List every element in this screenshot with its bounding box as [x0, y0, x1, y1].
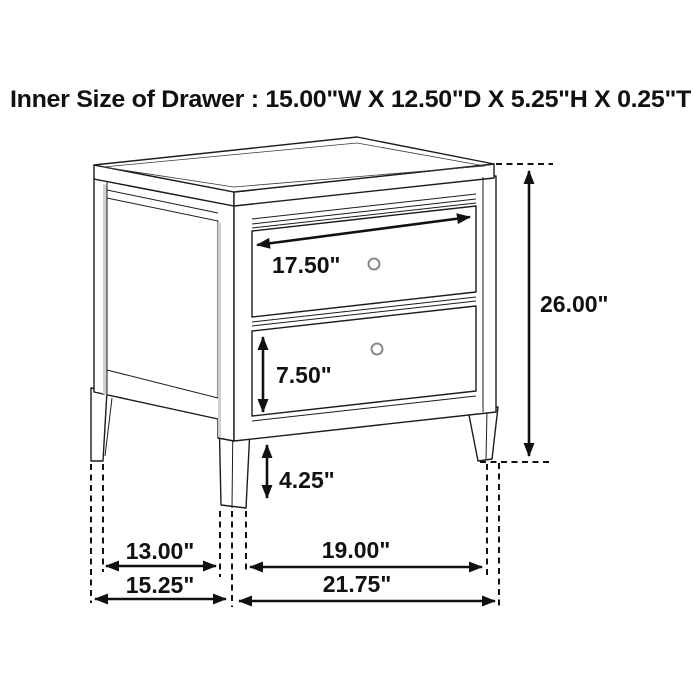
drawer-width-label: 17.50" — [272, 252, 340, 278]
side-stile-shading — [103, 184, 107, 396]
overall-height-label: 26.00" — [540, 291, 608, 317]
drawer-2-knob — [372, 344, 383, 355]
base-clearance-label: 4.25" — [279, 467, 335, 493]
front-leg-span-label: 19.00" — [322, 537, 390, 563]
side-depth-label: 15.25" — [126, 572, 194, 598]
dimension-diagram-page: Inner Size of Drawer : 15.00"W X 12.50"D… — [0, 0, 700, 700]
left-side-panel — [94, 179, 234, 441]
page-title: Inner Size of Drawer : 15.00"W X 12.50"D… — [10, 86, 692, 113]
drawer-height-label: 7.50" — [276, 362, 332, 388]
nightstand-dimension-diagram: Inner Size of Drawer : 15.00"W X 12.50"D… — [0, 0, 700, 700]
front-post-shading — [218, 222, 221, 437]
drawer-1-knob — [369, 259, 380, 270]
furniture-drawing — [91, 137, 498, 508]
side-leg-span-label: 13.00" — [126, 538, 194, 564]
back-left-leg — [91, 388, 107, 461]
front-width-label: 21.75" — [323, 571, 391, 597]
